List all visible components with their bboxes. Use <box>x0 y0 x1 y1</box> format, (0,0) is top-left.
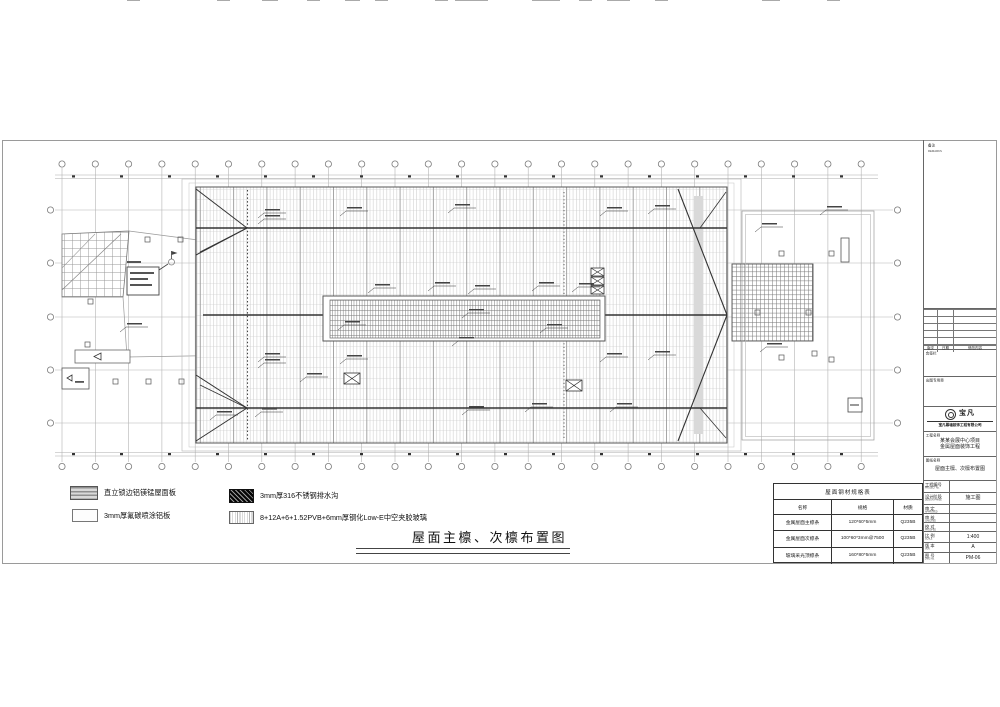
tiny-text-bar <box>435 0 448 1</box>
aluminum-panel-swatch <box>72 509 98 522</box>
legend-item: 8+12A+6+1.52PVB+6mm厚钢化Low-E中空夹胶玻璃 <box>229 511 427 524</box>
titleblock-notes: 备注 REMARKS <box>928 143 942 153</box>
legend-label: 直立锁边铝镁锰屋面板 <box>104 488 176 498</box>
tiny-text-bar <box>347 0 360 1</box>
legend-item: 直立锁边铝镁锰屋面板 <box>70 486 176 500</box>
drawing-title-underline <box>356 548 570 554</box>
tiny-text-bar <box>375 0 388 1</box>
title-block: 备注 REMARKS 版次 日期 修改内容 会签栏 出图专用章 <box>923 140 996 563</box>
spec-col-material: 材质 <box>894 500 922 514</box>
stamp-box: 出图专用章 <box>924 377 996 407</box>
tiny-text-bar <box>655 0 668 1</box>
spec-table-title: 屋面钢材规格表 <box>774 484 922 500</box>
row-value: 1:400 <box>950 534 996 540</box>
row-value: 施工图 <box>950 495 996 501</box>
legend-label: 3mm厚氟碳喷涂铝板 <box>104 511 170 521</box>
tiny-text-bar <box>767 0 780 1</box>
tiny-text-bar <box>827 0 840 1</box>
project-name-box: 工程名称 某某会展中心项目 金属屋面装饰工程 <box>924 432 996 457</box>
project-name-line2: 金属屋面装饰工程 <box>924 444 996 450</box>
titleblock-rows: 工程编号PROJECT No. 设计阶段DESIGN PHASE 施工图 审 定… <box>924 481 996 563</box>
stainless-gutter-swatch <box>229 489 254 503</box>
tiny-text-bar <box>617 0 630 1</box>
sign-box: 会签栏 <box>924 350 996 377</box>
tiny-text-bar <box>579 0 592 1</box>
tiny-text-bar <box>127 0 140 1</box>
sign-box-label: 会签栏 <box>924 350 989 356</box>
spec-row: 玻璃采光顶檩条 160*80*5mm Q235B <box>774 548 922 564</box>
tiny-text-bar <box>217 0 230 1</box>
dwg-title-box: 图纸名称 屋面主檩、次檩布置图 <box>924 457 996 481</box>
logo-box: 宝凡 宝凡幕墙装饰工程有限公司 <box>924 407 996 432</box>
notes-label-en: REMARKS <box>928 149 942 153</box>
legend-item: 3mm厚316不锈钢排水沟 <box>229 489 338 503</box>
spec-row: 金属屋面次檩条 100*60*3mm@7500 Q235B <box>774 531 922 547</box>
drawing-title: 屋面主檩、次檩布置图 <box>392 527 587 546</box>
company-name: 宝凡幕墙装饰工程有限公司 <box>927 421 993 427</box>
tiny-text-bar <box>469 0 482 1</box>
tiny-text-bar <box>532 0 545 1</box>
tiny-text-bar <box>262 0 275 1</box>
stamp-box-label: 出图专用章 <box>924 377 989 383</box>
row-value: PM-06 <box>950 555 996 561</box>
tiny-text-bar <box>307 0 320 1</box>
legend-item: 3mm厚氟碳喷涂铝板 <box>72 509 170 522</box>
row-value: A <box>950 544 996 550</box>
dwg-title-value: 屋面主檩、次檩布置图 <box>924 466 996 472</box>
spec-col-size: 规格 <box>832 500 894 514</box>
legend-label: 8+12A+6+1.52PVB+6mm厚钢化Low-E中空夹胶玻璃 <box>260 513 427 523</box>
notes-label: 备注 <box>928 143 940 148</box>
drawing-sheet: 备注 REMARKS 版次 日期 修改内容 会签栏 出图专用章 <box>0 0 1000 707</box>
spec-table: 屋面钢材规格表 名称 规格 材质 金属屋面主檩条 120*60*5mm Q235… <box>773 483 923 563</box>
dwg-title-label: 图纸名称 <box>926 457 940 462</box>
insulated-glass-swatch <box>229 511 254 524</box>
legend-label: 3mm厚316不锈钢排水沟 <box>260 491 338 501</box>
revision-table: 版次 日期 修改内容 <box>924 308 996 350</box>
tiny-text-bar <box>547 0 560 1</box>
spec-col-name: 名称 <box>774 500 832 514</box>
logo-text: 宝凡 <box>959 410 975 419</box>
spec-row: 金属屋面主檩条 120*60*5mm Q235B <box>774 515 922 531</box>
project-label: 工程名称 <box>926 432 940 437</box>
company-logo-icon <box>945 409 956 420</box>
standing-seam-swatch <box>70 486 98 500</box>
